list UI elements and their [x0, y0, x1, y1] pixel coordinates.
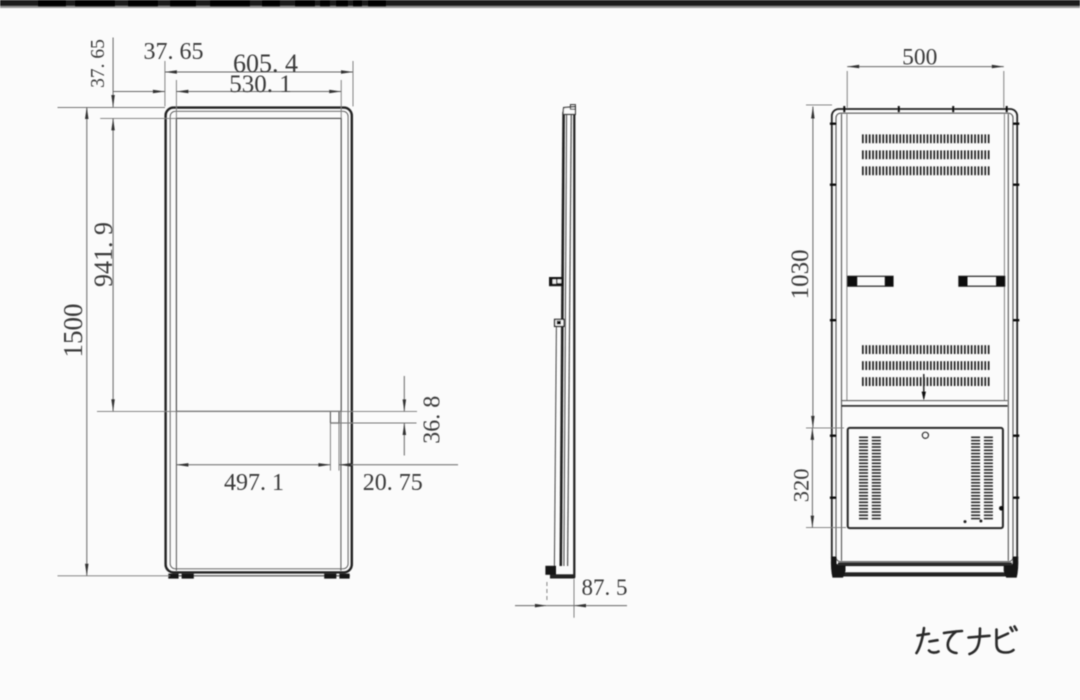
svg-text:497. 1: 497. 1 [224, 470, 284, 496]
svg-text:530. 1: 530. 1 [229, 71, 292, 98]
svg-text:20. 75: 20. 75 [363, 470, 423, 496]
svg-text:36. 8: 36. 8 [420, 396, 446, 444]
svg-text:1500: 1500 [58, 304, 88, 358]
svg-text:320: 320 [788, 469, 813, 503]
svg-text:87. 5: 87. 5 [582, 575, 628, 600]
svg-text:1030: 1030 [787, 249, 814, 299]
svg-text:941. 9: 941. 9 [89, 222, 118, 287]
svg-text:500: 500 [902, 45, 937, 71]
svg-text:37. 65: 37. 65 [88, 39, 109, 88]
svg-text:37. 65: 37. 65 [144, 39, 204, 65]
